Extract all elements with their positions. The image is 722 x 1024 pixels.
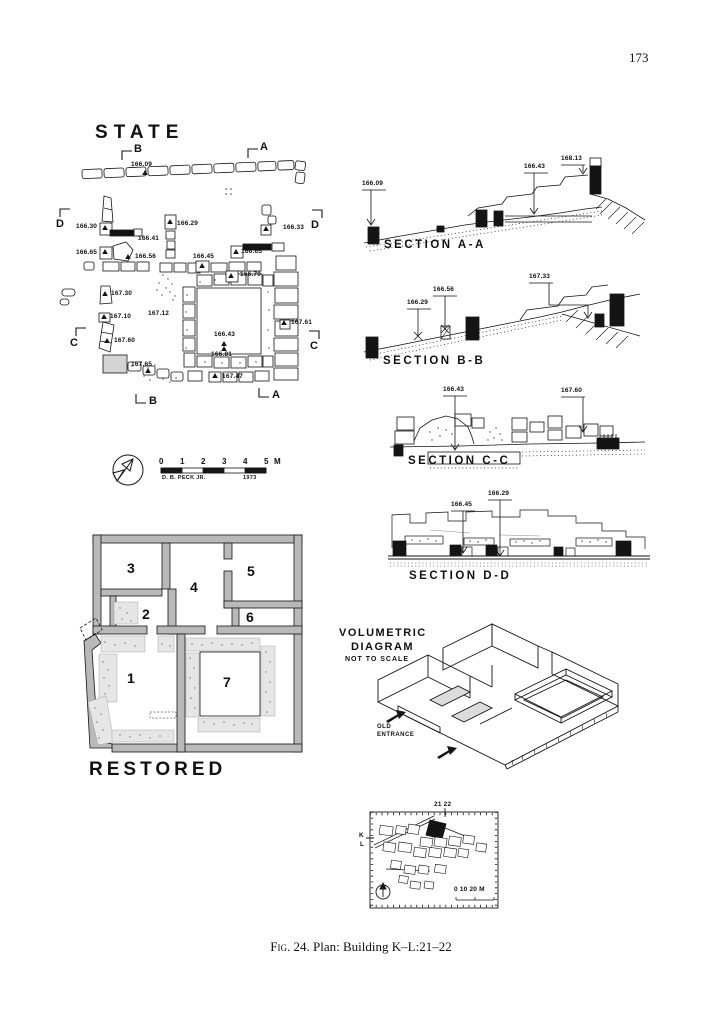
section-marker-letter: B <box>134 144 142 155</box>
scale-tick: 3 <box>222 458 226 466</box>
elevation-label: 166.29 <box>177 221 198 228</box>
elevation-label: 167.30 <box>111 291 132 298</box>
room-number: 6 <box>246 610 254 624</box>
section-marker-letter: A <box>260 142 268 153</box>
section-elevation-label: 166.43 <box>443 387 464 394</box>
elevation-label: 166.43 <box>214 332 235 339</box>
old-entrance-label-line2: ENTRANCE <box>377 732 414 738</box>
room-number: 7 <box>223 675 231 689</box>
volumetric-subtitle: NOT TO SCALE <box>345 656 409 663</box>
north-arrow-icon <box>113 455 143 485</box>
elevation-label: 166.65 <box>241 249 262 256</box>
section-marker-letter: A <box>272 390 280 401</box>
grid-ref-columns: 21 22 <box>434 802 451 809</box>
scale-bar <box>161 468 266 473</box>
elevation-label: 166.45 <box>193 254 214 261</box>
section-elevation-label: 166.29 <box>407 300 428 307</box>
section-title: SECTION C-C <box>408 456 510 468</box>
section-title: SECTION B-B <box>383 356 485 368</box>
section-elevation-label: 166.29 <box>488 491 509 498</box>
scale-unit: M <box>274 458 281 466</box>
grid-ref-row-l: L <box>360 842 364 849</box>
section-marker-letter: D <box>311 220 319 231</box>
map-scale-label: 0 10 20 M <box>454 887 485 894</box>
elevation-label: 166.33 <box>283 225 304 232</box>
section-marker-letter: B <box>149 396 157 407</box>
figure-caption-number: Fig. 24. <box>270 939 309 954</box>
scale-tick: 1 <box>180 458 184 466</box>
state-plan-title: STATE <box>95 123 184 142</box>
elevation-label: 166.09 <box>131 162 152 169</box>
volumetric-title-line2: DIAGRAM <box>351 642 414 653</box>
section-elevation-label: 167.60 <box>561 388 582 395</box>
scale-tick: 0 <box>159 458 163 466</box>
room-number: 3 <box>127 561 135 575</box>
scale-tick: 4 <box>243 458 247 466</box>
volumetric-title-line1: VOLUMETRIC <box>339 628 427 639</box>
section-bb-drawing <box>364 283 640 360</box>
surveyor-credit: D. B. PECK JR. <box>162 476 206 482</box>
section-dd-drawing <box>388 500 650 566</box>
section-elevation-label: 167.33 <box>529 274 550 281</box>
elevation-label: 167.60 <box>114 338 135 345</box>
section-title: SECTION A-A <box>384 240 486 252</box>
elevation-label: 167.65 <box>131 362 152 369</box>
elevation-label: 166.65 <box>76 250 97 257</box>
grid-ref-row-k: K <box>359 833 364 840</box>
elevation-label: 167.61 <box>291 320 312 327</box>
figure-artwork <box>0 0 722 1024</box>
section-elevation-label: 166.45 <box>451 502 472 509</box>
room-number: 1 <box>127 671 135 685</box>
elevation-label: 167.47 <box>222 374 243 381</box>
figure-caption-text: Plan: Building K–L:21–22 <box>310 939 452 954</box>
survey-year: 1973 <box>243 476 256 482</box>
elevation-label: 166.41 <box>138 236 159 243</box>
scale-tick: 2 <box>201 458 205 466</box>
section-marker-letter: C <box>310 341 318 352</box>
room-number: 5 <box>247 564 255 578</box>
scale-tick: 5 <box>264 458 268 466</box>
section-elevation-label: 166.09 <box>362 181 383 188</box>
section-aa-drawing <box>362 158 645 251</box>
section-marker-letter: D <box>56 219 64 230</box>
elevation-label: 167.10 <box>110 314 131 321</box>
section-elevation-label: 166.56 <box>433 287 454 294</box>
map-north-arrow-icon <box>376 883 390 899</box>
elevation-label: 166.81 <box>211 352 232 359</box>
state-plan-drawing <box>60 149 322 403</box>
section-title: SECTION D-D <box>409 571 511 583</box>
restored-plan-title: RESTORED <box>89 760 226 779</box>
scanned-page: 173 STATE B A D D C C B A 166.09 166.30 … <box>0 0 722 1024</box>
figure-caption: Fig. 24. Plan: Building K–L:21–22 <box>0 939 722 955</box>
elevation-label: 166.70 <box>240 272 261 279</box>
section-elevation-label: 168.13 <box>561 156 582 163</box>
section-elevation-label: 166.43 <box>524 164 545 171</box>
section-marker-letter: C <box>70 338 78 349</box>
room-number: 2 <box>142 607 150 621</box>
old-entrance-label-line1: OLD <box>377 724 391 730</box>
room-number: 4 <box>190 580 198 594</box>
elevation-label: 166.56 <box>135 254 156 261</box>
elevation-label: 167.12 <box>148 311 169 318</box>
elevation-label: 166.30 <box>76 224 97 231</box>
page-number: 173 <box>629 50 649 66</box>
restored-plan-drawing <box>80 535 302 752</box>
